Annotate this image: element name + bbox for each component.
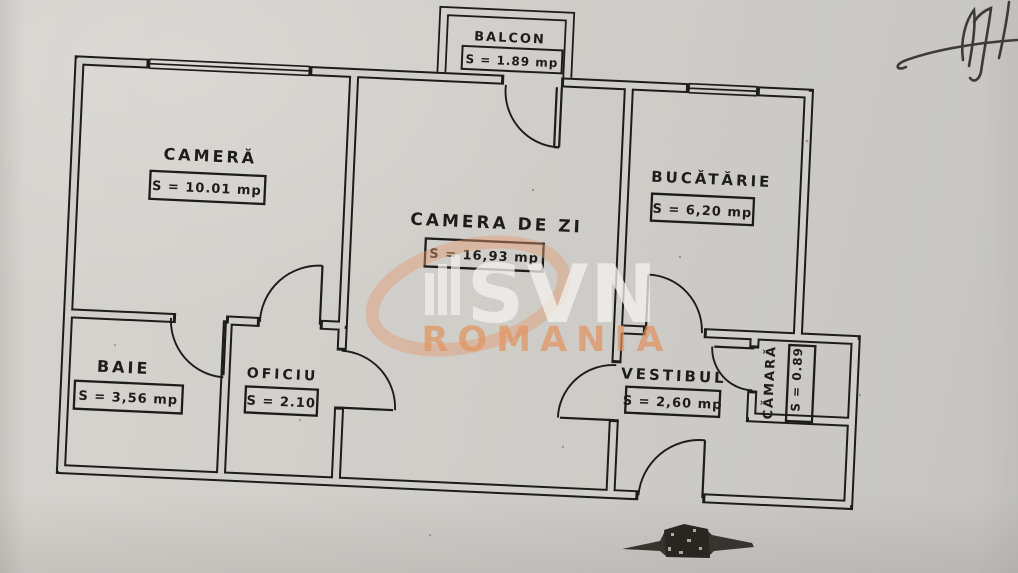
room-name: BALCON — [474, 29, 546, 47]
room-name: CAMERA DE ZI — [410, 210, 583, 238]
room-name: VESTIBUL — [621, 364, 727, 387]
signature-mark — [898, 2, 1017, 80]
room-label-camara: CĂMARĂ S = 0.89 — [760, 344, 815, 422]
room-area: S = 2.10 — [246, 393, 316, 411]
room-label-balcon: BALCON S = 1.89 mp — [462, 29, 564, 73]
room-name: CAMERĂ — [163, 144, 257, 167]
room-area: S = 10.01 mp — [152, 179, 262, 199]
stamp-mark — [622, 524, 754, 558]
floor-plan: BALCON S = 1.89 mp CAMERĂ S = 10.01 mp C… — [56, 0, 875, 510]
room-name: BAIE — [97, 357, 151, 378]
room-label-vestibul: VESTIBUL S = 2,60 mp — [619, 364, 727, 417]
wall-inner-lines — [59, 58, 869, 507]
room-label-baie: BAIE S = 3,56 mp — [74, 356, 184, 414]
room-label-oficiu: OFICIU S = 2.10 — [245, 365, 319, 415]
room-area: S = 3,56 mp — [78, 389, 178, 409]
wall-lines — [56, 55, 872, 510]
room-area: S = 2,60 mp — [622, 394, 722, 414]
room-area: S = 1.89 mp — [465, 52, 558, 70]
room-label-bucatarie: BUCĂTĂRIE S = 6,20 mp — [649, 167, 773, 226]
scanned-floor-plan-photo: BALCON S = 1.89 mp CAMERĂ S = 10.01 mp C… — [0, 0, 1018, 573]
watermark-bars — [425, 255, 460, 315]
room-area: S = 6,20 mp — [652, 202, 752, 222]
room-label-camera: CAMERĂ S = 10.01 mp — [149, 144, 266, 204]
watermark-country-text: ROMANIA — [421, 320, 672, 360]
room-name: CĂMARĂ — [760, 344, 779, 419]
door-arcs — [164, 70, 766, 500]
floor-plan-svg: BALCON S = 1.89 mp CAMERĂ S = 10.01 mp C… — [0, 0, 1018, 573]
room-name: BUCĂTĂRIE — [651, 167, 773, 191]
room-name: OFICIU — [246, 365, 318, 384]
room-area: S = 0.89 — [788, 347, 805, 412]
